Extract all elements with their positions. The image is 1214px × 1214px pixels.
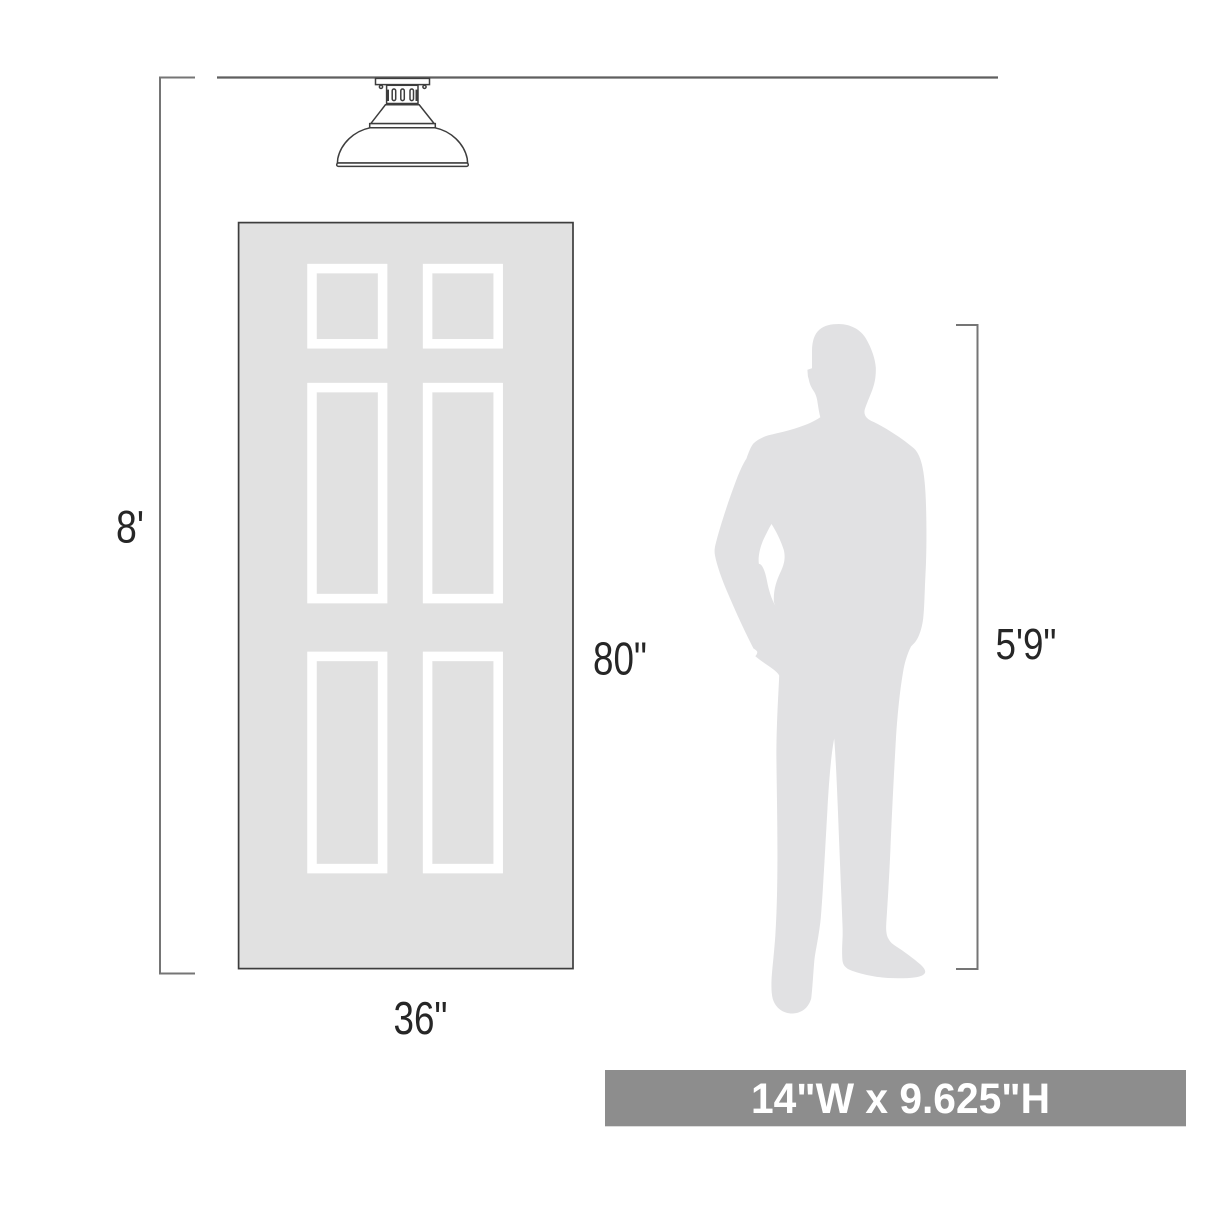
svg-text:80": 80" bbox=[593, 633, 647, 685]
svg-text:14"W x 9.625"H: 14"W x 9.625"H bbox=[751, 1076, 1050, 1123]
svg-text:8': 8' bbox=[116, 502, 144, 553]
svg-text:36": 36" bbox=[394, 992, 448, 1044]
svg-text:5'9": 5'9" bbox=[996, 620, 1057, 669]
